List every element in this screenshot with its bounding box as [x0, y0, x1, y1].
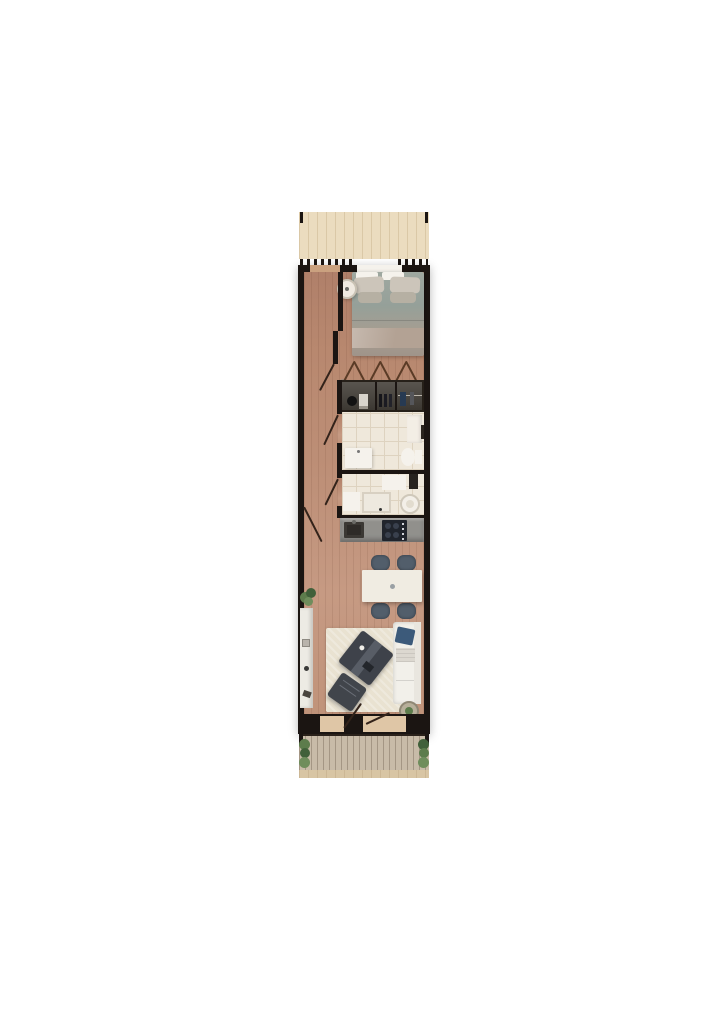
sideboard — [300, 608, 313, 708]
sideboard-decor-vase — [304, 666, 309, 671]
folded-throw — [396, 648, 415, 662]
hanging-garment — [410, 392, 414, 405]
storage-box — [343, 492, 360, 511]
vanity-sink — [345, 448, 372, 468]
hall-wall-lower — [333, 331, 338, 364]
cooktop-controls — [402, 523, 404, 525]
deck-corner-tick — [300, 212, 303, 223]
duvet-crease — [352, 320, 424, 321]
pillow — [390, 276, 421, 293]
nightstand-decor — [345, 287, 349, 291]
shower-tray — [362, 492, 391, 513]
dark-cabinet — [409, 474, 418, 489]
hall-wall-upper — [338, 272, 343, 331]
planter-right — [417, 738, 430, 769]
shelf-column — [407, 415, 422, 443]
bag — [347, 396, 357, 406]
navy-cushion — [395, 626, 416, 645]
planter-left — [298, 738, 311, 769]
washer-drum — [406, 500, 414, 508]
living-region — [298, 586, 430, 718]
burner — [385, 523, 391, 529]
terrace-bottom-deck — [299, 734, 429, 772]
deck-corner-tick — [425, 212, 428, 223]
faucet — [357, 450, 360, 453]
double-bed — [352, 272, 424, 356]
deck-edge-strip — [299, 770, 429, 778]
blanket-fold — [352, 328, 424, 348]
kitchen-counter — [340, 518, 424, 542]
cup — [358, 644, 365, 651]
burner — [393, 532, 399, 538]
terrace-door-opening-left — [320, 716, 344, 732]
pillow-small — [358, 292, 382, 303]
plant-leaf — [304, 597, 313, 606]
coffee-table-runner — [351, 640, 383, 677]
burner — [393, 523, 399, 529]
sideboard-decor-object — [302, 690, 312, 698]
dining-chair — [371, 555, 390, 571]
hanging-garment — [400, 392, 406, 406]
balcony-door-opening — [310, 265, 340, 272]
sofa-seat-seam — [396, 680, 414, 681]
potted-plant — [299, 588, 317, 608]
wardrobe-divider — [395, 382, 397, 410]
terrace-door-opening-right — [363, 716, 406, 732]
plant-leaf — [418, 757, 429, 768]
sofa — [393, 622, 421, 704]
kitchen-sink — [344, 522, 364, 538]
folded-clothes — [359, 394, 368, 406]
page-background — [0, 0, 725, 1024]
bathroom-region — [342, 412, 424, 470]
shoes — [379, 394, 382, 407]
sink-faucet — [352, 520, 356, 524]
cooktop — [382, 520, 407, 541]
laundry-counter — [382, 475, 406, 490]
sofa-backrest — [414, 622, 421, 704]
terrace-top-deck — [299, 212, 429, 259]
floor-plan — [298, 211, 430, 778]
sink-basin — [347, 525, 361, 535]
burner — [385, 532, 391, 538]
sideboard-decor-frame — [302, 639, 310, 647]
shower-drain — [379, 508, 382, 511]
wardrobe-interior — [342, 382, 422, 410]
washing-machine — [400, 494, 420, 514]
chair-seam — [343, 680, 360, 692]
towel-radiator — [421, 425, 424, 439]
book — [362, 661, 374, 673]
toilet-bowl — [401, 448, 415, 466]
toilet-tank — [415, 450, 422, 464]
plant-leaf — [299, 757, 310, 768]
wardrobe-divider — [375, 382, 377, 410]
wardrobe-region — [340, 380, 424, 412]
stud-wall-top-right — [398, 259, 428, 265]
pillow-small — [390, 292, 416, 303]
shower-room-region — [342, 474, 424, 515]
dining-chair — [397, 555, 416, 571]
